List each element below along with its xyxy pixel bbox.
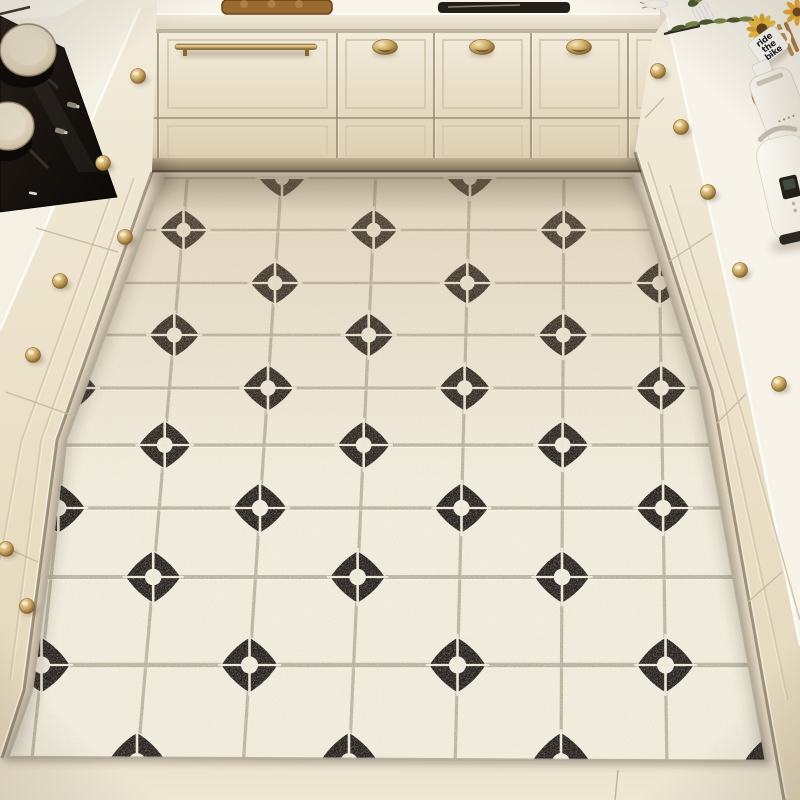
- vignette: [0, 0, 800, 800]
- kitchen-render: ridethebike: [0, 0, 800, 800]
- kitchen-scene: ridethebike: [0, 0, 800, 800]
